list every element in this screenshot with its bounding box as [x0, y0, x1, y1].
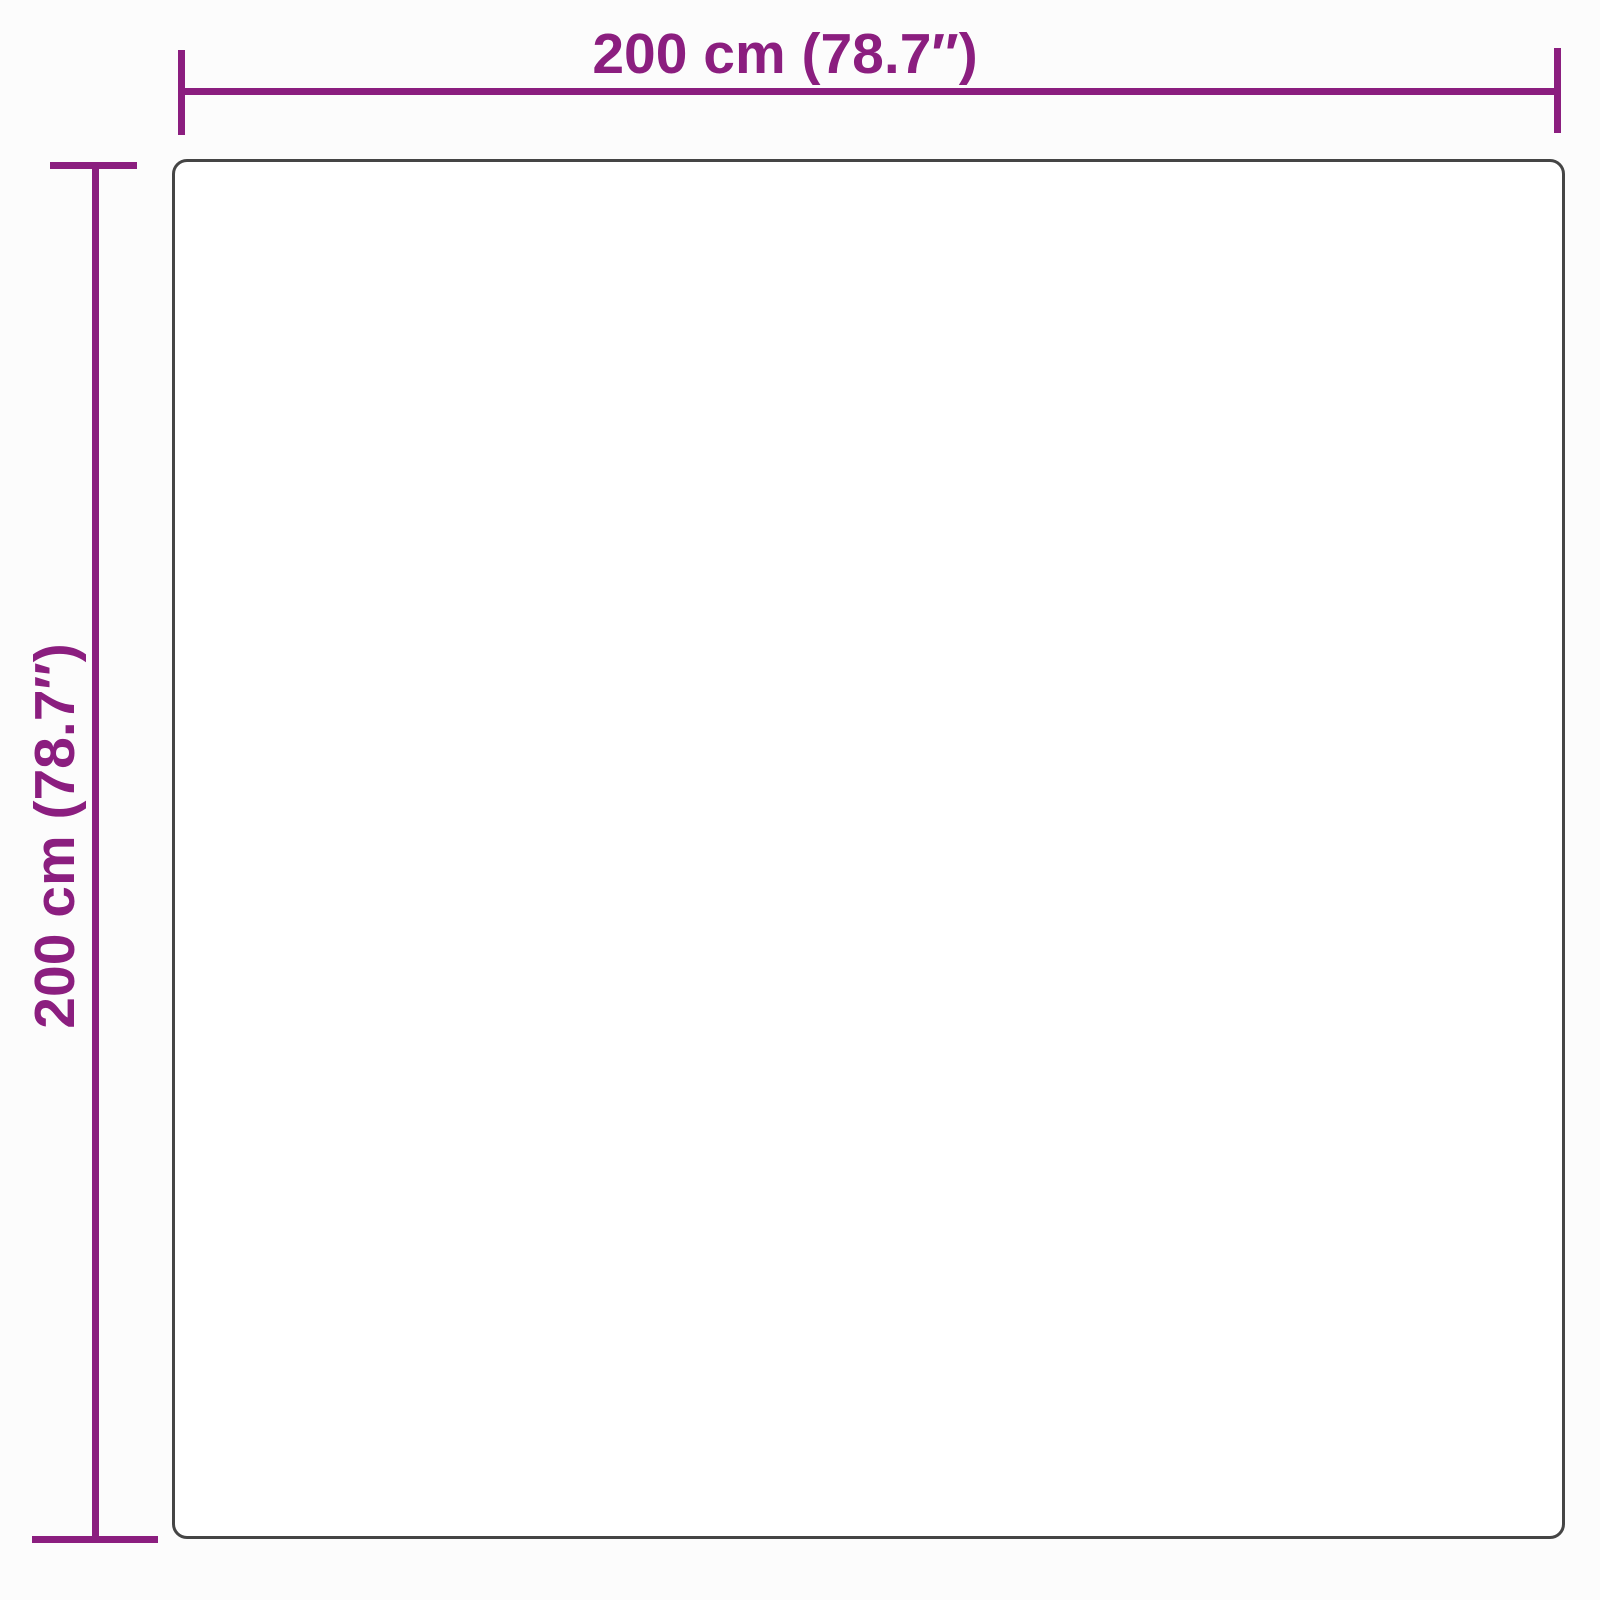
product-outline — [172, 159, 1565, 1539]
dimension-diagram: 200 cm (78.7″) 200 cm (78.7″) — [0, 0, 1600, 1600]
width-dimension-line — [181, 88, 1558, 95]
width-dimension-tick-left — [178, 50, 185, 135]
width-dimension-tick-right — [1554, 48, 1561, 133]
height-dimension-tick-top — [50, 162, 137, 169]
height-dimension-label: 200 cm (78.7″) — [25, 536, 85, 1136]
height-dimension-line — [92, 165, 99, 1539]
height-dimension-tick-bottom — [32, 1536, 158, 1543]
width-dimension-label: 200 cm (78.7″) — [385, 24, 1185, 84]
